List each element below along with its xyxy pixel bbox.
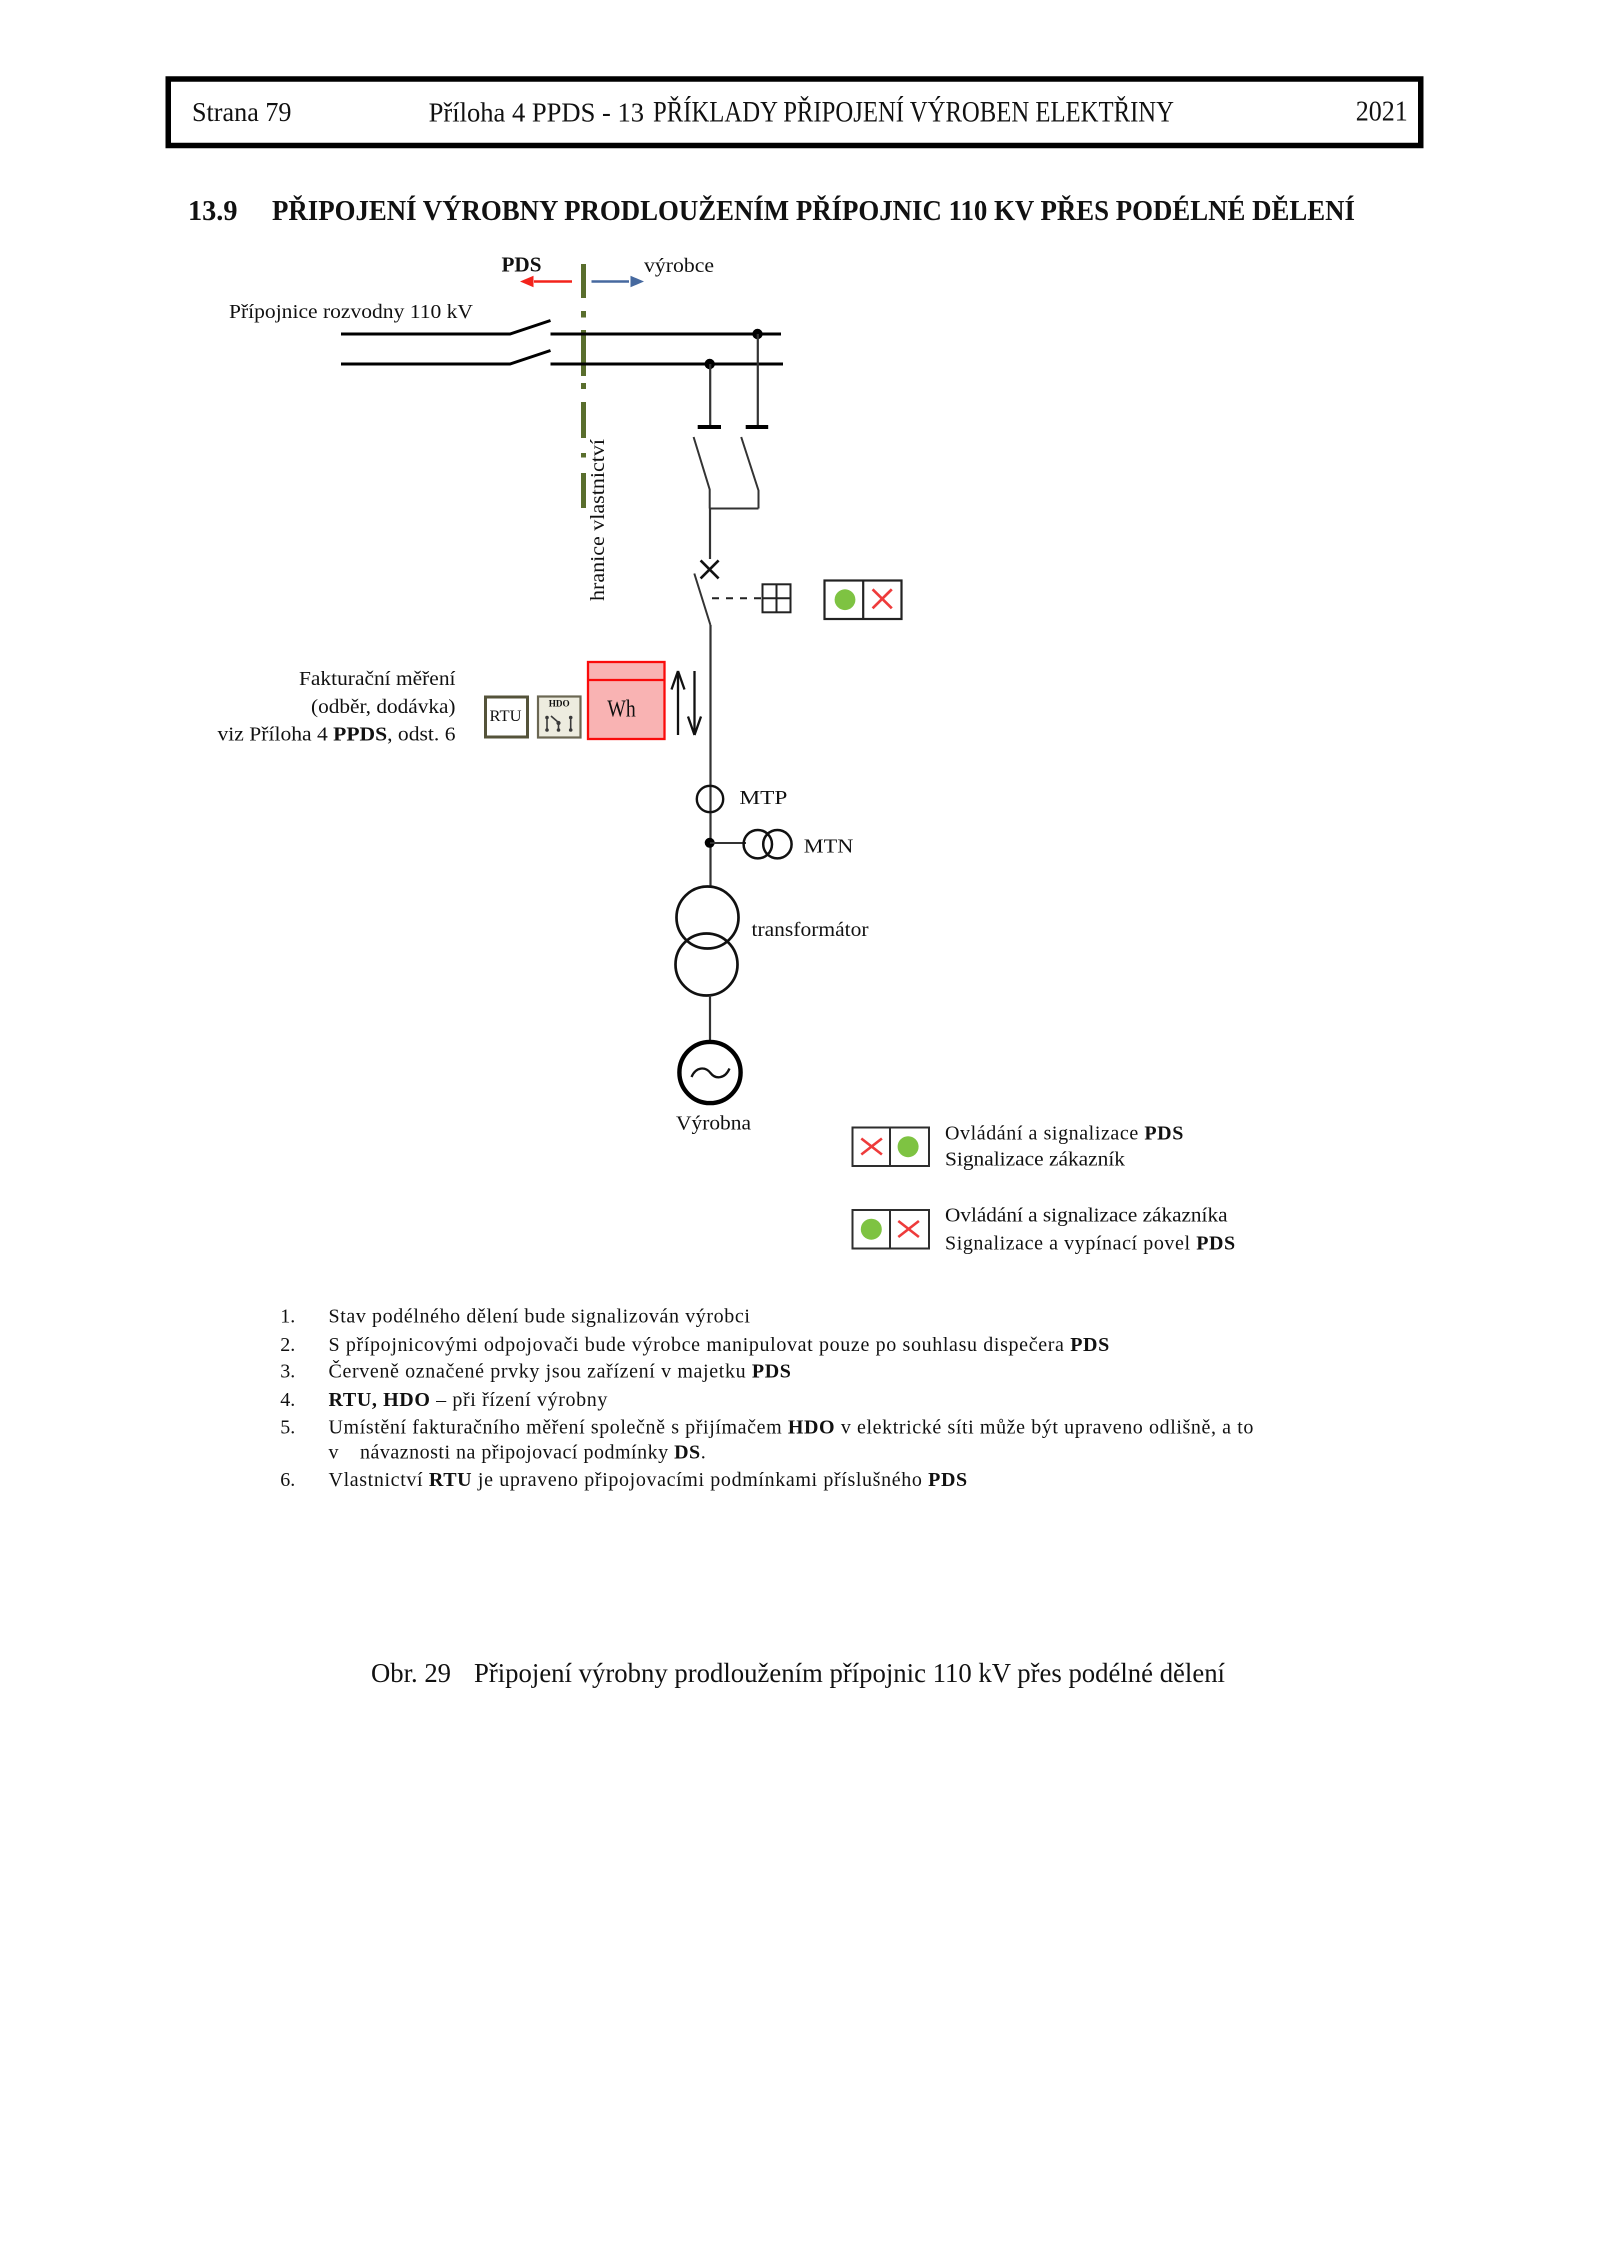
svg-text:Wh: Wh	[607, 697, 636, 723]
svg-text:S přípojnicovými odpojovači bu: S přípojnicovými odpojovači bude výrobce…	[329, 1334, 1110, 1356]
svg-text:vnávaznosti na připojovací pod: vnávaznosti na připojovací podmínky DS.	[329, 1442, 707, 1464]
svg-text:Fakturační měření: Fakturační měření	[299, 668, 456, 690]
svg-text:PŘÍKLADY PŘIPOJENÍ VÝROBEN ELE: PŘÍKLADY PŘIPOJENÍ VÝROBEN ELEKTŘINY	[653, 96, 1174, 129]
svg-text:Signalizace a vypínací povel P: Signalizace a vypínací povel PDS	[945, 1233, 1236, 1255]
svg-text:(odběr, dodávka): (odběr, dodávka)	[311, 696, 456, 718]
svg-text:3.: 3.	[280, 1361, 295, 1383]
svg-text:Stav podélného dělení bude sig: Stav podélného dělení bude signalizován …	[329, 1306, 751, 1328]
svg-text:Ovládání a signalizace zákazní: Ovládání a signalizace zákazníka	[945, 1205, 1228, 1227]
svg-text:Vlastnictví RTU je upraveno př: Vlastnictví RTU je upraveno připojovacím…	[329, 1469, 968, 1491]
svg-text:viz Příloha 4 PPDS, odst. 6: viz Příloha 4 PPDS, odst. 6	[218, 724, 456, 746]
svg-text:Strana 79: Strana 79	[192, 97, 292, 127]
svg-text:Výrobna: Výrobna	[676, 1113, 751, 1135]
svg-text:PŘIPOJENÍ VÝROBNY PRODLOUŽENÍM: PŘIPOJENÍ VÝROBNY PRODLOUŽENÍM PŘÍPOJNIC…	[272, 196, 1355, 227]
svg-text:Připojení výrobny prodloužením: Připojení výrobny prodloužením přípojnic…	[474, 1658, 1225, 1688]
svg-text:HDO: HDO	[549, 700, 570, 710]
svg-text:hranice vlastnictví: hranice vlastnictví	[587, 439, 609, 601]
svg-text:Signalizace zákazník: Signalizace zákazník	[945, 1149, 1125, 1171]
svg-text:13.9: 13.9	[188, 196, 238, 227]
svg-text:PDS: PDS	[502, 253, 542, 277]
svg-text:Umístění fakturačního měření s: Umístění fakturačního měření společně s …	[329, 1417, 1255, 1439]
svg-text:2021: 2021	[1356, 97, 1408, 128]
svg-text:výrobce: výrobce	[644, 255, 714, 277]
svg-text:Červeně označené prvky jsou za: Červeně označené prvky jsou zařízení v m…	[329, 1359, 792, 1383]
svg-text:MTP: MTP	[739, 787, 787, 809]
svg-text:MTN: MTN	[804, 836, 854, 858]
svg-text:1.: 1.	[280, 1306, 295, 1328]
svg-text:Příloha 4 PPDS - 13: Příloha 4 PPDS - 13	[429, 98, 644, 128]
svg-text:4.: 4.	[280, 1389, 295, 1411]
svg-text:Přípojnice rozvodny 110 kV: Přípojnice rozvodny 110 kV	[229, 301, 474, 323]
svg-text:Ovládání a signalizace PDS: Ovládání a signalizace PDS	[945, 1123, 1184, 1145]
svg-text:2.: 2.	[280, 1334, 295, 1356]
svg-text:6.: 6.	[280, 1469, 295, 1491]
svg-text:RTU: RTU	[490, 708, 522, 725]
svg-text:transformátor: transformátor	[752, 919, 869, 941]
svg-text:5.: 5.	[280, 1417, 295, 1439]
svg-text:RTU, HDO – při řízení výrobny: RTU, HDO – při řízení výrobny	[329, 1389, 608, 1411]
svg-text:Obr. 29: Obr. 29	[371, 1658, 451, 1688]
